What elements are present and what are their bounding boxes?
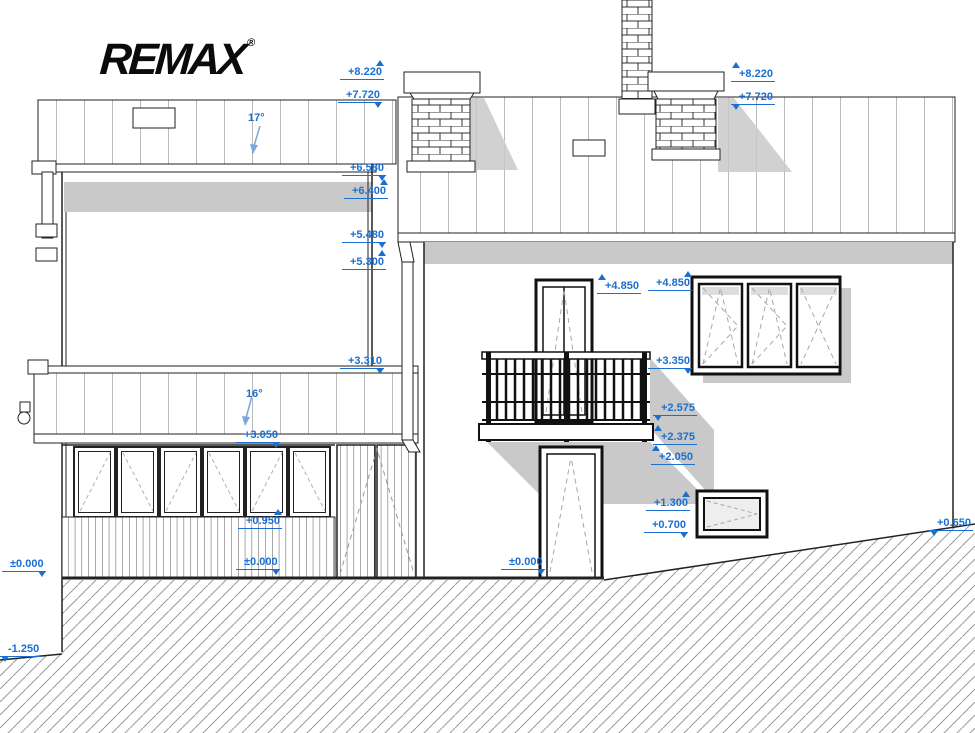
roof-slope-label: 16°: [246, 388, 263, 401]
balcony-slab: [479, 424, 653, 440]
elevation-level-label: +4.850: [648, 277, 692, 291]
eave-shadow-left: [64, 182, 372, 212]
elevation-value: +2.375: [653, 431, 697, 445]
elevation-level-label: +7.720: [338, 89, 382, 103]
chimney-tall: [619, 0, 655, 114]
arrow-down-icon: [654, 415, 662, 421]
elevation-value: +7.720: [731, 91, 775, 105]
elevation-value: +4.850: [597, 280, 641, 294]
elevation-value: 17°: [248, 112, 265, 125]
elevation-value: +3.310: [340, 355, 384, 369]
window-unit: [117, 447, 158, 517]
gutter: [34, 164, 376, 172]
elevation-value: +8.220: [731, 68, 775, 82]
arrow-down-icon: [378, 242, 386, 248]
arrow-up-icon: [654, 425, 662, 431]
arrow-down-icon: [1, 656, 9, 662]
arrow-up-icon: [378, 250, 386, 256]
elevation-value: +6.400: [344, 185, 388, 199]
balcony-railing: [479, 352, 653, 442]
elevation-value: ±0.000: [236, 556, 280, 570]
window-unit: [203, 447, 244, 517]
arrow-down-icon: [684, 368, 692, 374]
elevation-level-label: +0.950: [238, 515, 282, 529]
arrow-down-icon: [680, 532, 688, 538]
elevation-value: +6.580: [342, 162, 386, 176]
elevation-level-label: +2.575: [653, 402, 697, 416]
arrow-up-icon: [652, 445, 660, 451]
elevation-value: +0.700: [644, 519, 688, 533]
elevation-level-label: ±0.000: [236, 556, 280, 570]
arrow-up-icon: [598, 274, 606, 280]
downpipe-outlet: [18, 412, 30, 424]
elevation-sheet: REMAX® +8.220+7.720+6.580+6.400+5.480+5.…: [0, 0, 975, 733]
elevation-value: +0.650: [929, 517, 973, 531]
elevation-value: ±0.000: [2, 558, 46, 572]
window-unit: [289, 447, 330, 517]
remax-logo: REMAX®: [98, 38, 255, 82]
downspout-left: [36, 172, 57, 261]
elevation-value: +1.300: [646, 497, 690, 511]
arrow-down-icon: [272, 442, 280, 448]
arrow-up-icon: [380, 179, 388, 185]
entrance-door: [540, 447, 602, 578]
elevation-value: +2.050: [651, 451, 695, 465]
arrow-up-icon: [376, 60, 384, 66]
triple-window: [692, 277, 840, 374]
arrow-down-icon: [930, 530, 938, 536]
elevation-value: -1.250: [0, 643, 41, 657]
elevation-value: +0.950: [238, 515, 282, 529]
elevation-level-label: ±0.000: [501, 556, 545, 570]
elevation-value: +3.050: [236, 429, 280, 443]
arrow-up-icon: [684, 271, 692, 277]
elevation-value: 16°: [246, 388, 263, 401]
elevation-level-label: +8.220: [731, 68, 775, 82]
elevation-value: +5.480: [342, 229, 386, 243]
arrow-down-icon: [374, 102, 382, 108]
registered-mark: ®: [247, 37, 256, 49]
fascia: [398, 233, 955, 242]
elevation-level-label: +5.480: [342, 229, 386, 243]
arrow-up-icon: [682, 491, 690, 497]
elevation-level-label: +2.375: [653, 431, 697, 445]
arrow-down-icon: [38, 571, 46, 577]
elevation-level-label: -1.250: [0, 643, 41, 657]
arrow-down-icon: [537, 569, 545, 575]
elevation-level-label: +2.050: [651, 451, 695, 465]
elevation-drawing: [0, 0, 975, 733]
elevation-level-label: +0.700: [644, 519, 688, 533]
arrow-down-icon: [376, 368, 384, 374]
elevation-value: +2.575: [653, 402, 697, 416]
chimney-wide: [648, 72, 724, 160]
elevation-level-label: +7.720: [731, 91, 775, 105]
elevation-value: ±0.000: [501, 556, 545, 570]
elevation-value: +7.720: [338, 89, 382, 103]
elevation-level-label: +1.300: [646, 497, 690, 511]
logo-text: REMAX: [98, 35, 245, 84]
elevation-value: +8.220: [340, 66, 384, 80]
chimney-left: [404, 72, 480, 172]
winter-garden-windows: [62, 445, 335, 517]
elevation-level-label: +3.310: [340, 355, 384, 369]
arrow-down-icon: [272, 569, 280, 575]
window-shadow: [840, 288, 851, 382]
elevation-level-label: +3.350: [648, 355, 692, 369]
elevation-level-label: +4.850: [597, 280, 641, 294]
arrow-up-icon: [732, 62, 740, 68]
elevation-level-label: ±0.000: [2, 558, 46, 572]
elevation-value: +3.350: [648, 355, 692, 369]
roof-slope-label: 17°: [248, 112, 265, 125]
arrow-down-icon: [732, 104, 740, 110]
elevation-level-label: +6.400: [344, 185, 388, 199]
elevation-level-label: +3.050: [236, 429, 280, 443]
window-unit: [160, 447, 201, 517]
elevation-value: +4.850: [648, 277, 692, 291]
roof-vent-right: [573, 140, 605, 156]
elevation-level-label: +8.220: [340, 66, 384, 80]
roof-vent-left: [133, 108, 175, 128]
elevation-level-label: +0.650: [929, 517, 973, 531]
window-unit: [74, 447, 115, 517]
elevation-level-label: +6.580: [342, 162, 386, 176]
lower-roof: [18, 360, 418, 443]
window-unit: [246, 447, 287, 517]
arrow-up-icon: [274, 509, 282, 515]
small-window: [697, 491, 767, 537]
elevation-level-label: +5.300: [342, 256, 386, 270]
eave-shadow-right: [424, 242, 953, 264]
elevation-value: +5.300: [342, 256, 386, 270]
